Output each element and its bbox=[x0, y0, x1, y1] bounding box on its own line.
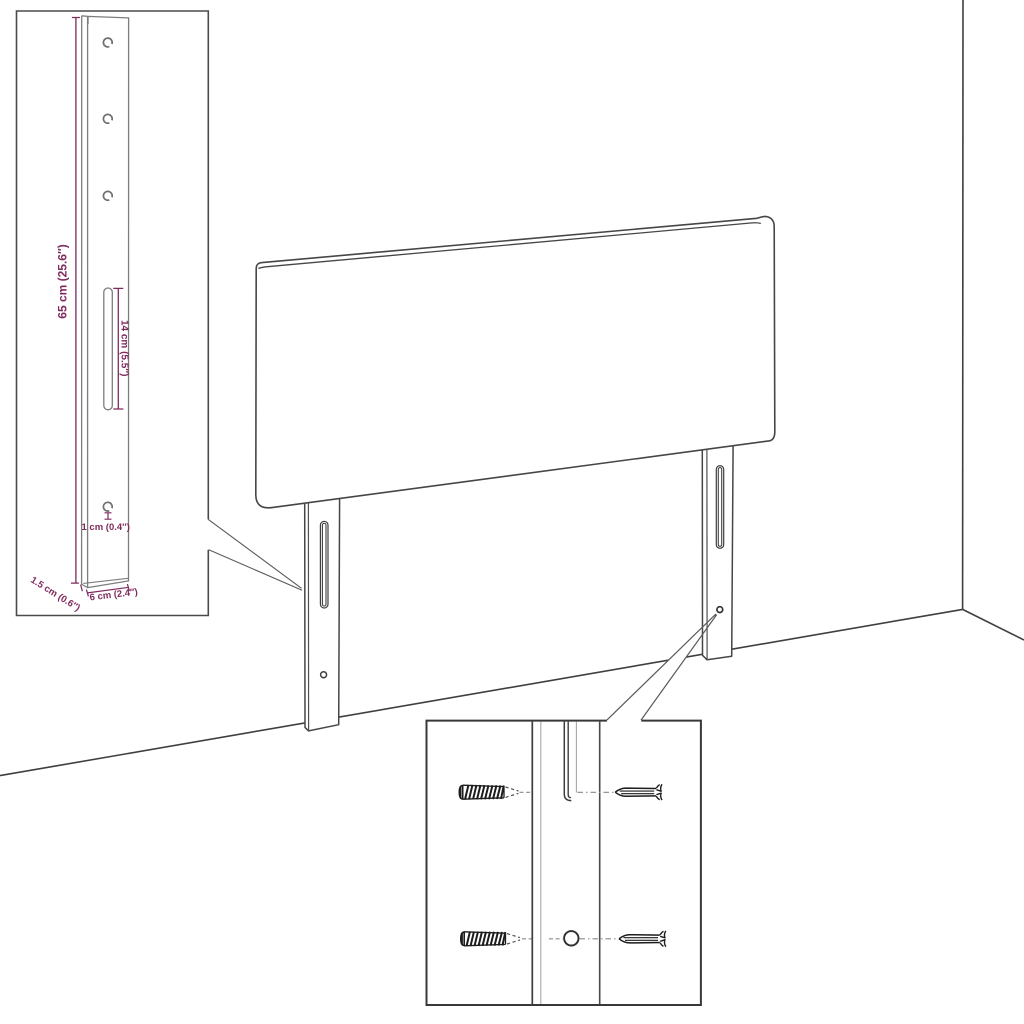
svg-text:65 cm (25.6″): 65 cm (25.6″) bbox=[56, 244, 70, 318]
svg-text:14 cm (5.5″): 14 cm (5.5″) bbox=[119, 320, 130, 376]
svg-text:1 cm (0.4″): 1 cm (0.4″) bbox=[82, 522, 130, 533]
